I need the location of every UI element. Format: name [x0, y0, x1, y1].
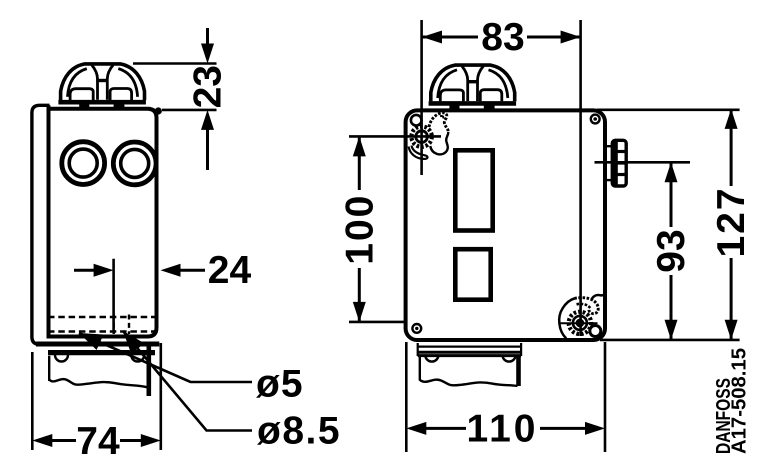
svg-text:83: 83: [481, 16, 524, 59]
svg-text:A17-508.15: A17-508.15: [729, 348, 751, 454]
svg-text:110: 110: [467, 407, 539, 450]
svg-text:93: 93: [650, 229, 693, 272]
svg-text:ø8.5: ø8.5: [257, 410, 341, 453]
svg-text:100: 100: [338, 194, 381, 265]
svg-text:ø5: ø5: [256, 363, 304, 406]
svg-text:23: 23: [187, 65, 230, 108]
svg-text:24: 24: [208, 249, 252, 292]
svg-text:74: 74: [76, 420, 120, 463]
svg-text:127: 127: [710, 186, 753, 257]
